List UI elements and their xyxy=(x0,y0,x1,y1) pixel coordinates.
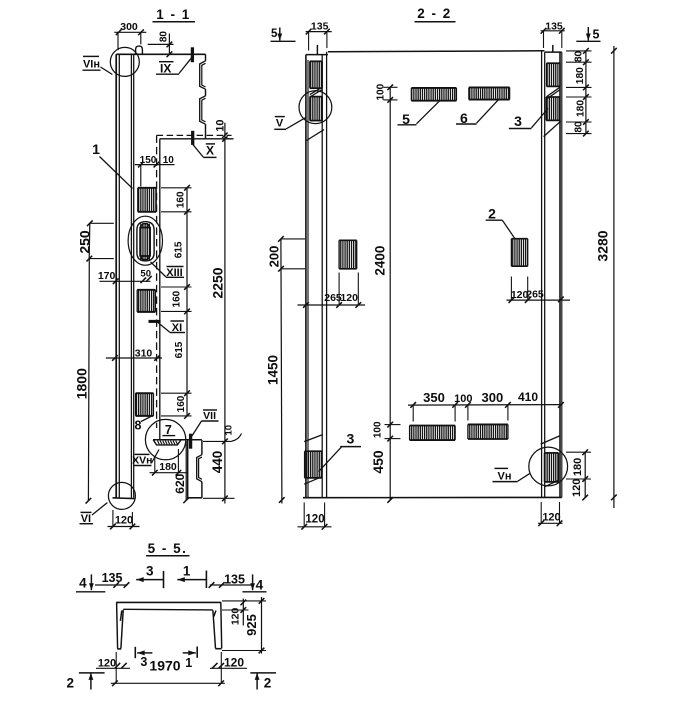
svg-text:300: 300 xyxy=(120,21,138,33)
svg-text:120: 120 xyxy=(340,292,358,304)
svg-text:V: V xyxy=(276,118,284,130)
svg-text:3280: 3280 xyxy=(595,230,611,261)
svg-text:4: 4 xyxy=(256,577,264,592)
svg-text:615: 615 xyxy=(174,241,185,258)
svg-text:120: 120 xyxy=(224,656,244,670)
svg-text:180: 180 xyxy=(576,100,587,117)
svg-text:350: 350 xyxy=(423,390,445,405)
svg-text:120: 120 xyxy=(542,512,560,524)
svg-text:100: 100 xyxy=(376,83,387,100)
svg-text:170: 170 xyxy=(98,270,116,282)
svg-text:2: 2 xyxy=(67,676,75,691)
svg-text:120: 120 xyxy=(98,657,116,669)
svg-text:3: 3 xyxy=(347,430,355,446)
svg-text:5: 5 xyxy=(593,28,600,42)
svg-text:1: 1 xyxy=(185,656,192,670)
svg-text:3: 3 xyxy=(140,655,147,669)
svg-text:5: 5 xyxy=(271,28,278,40)
svg-text:80: 80 xyxy=(574,51,585,63)
svg-text:80: 80 xyxy=(574,121,585,133)
svg-text:620: 620 xyxy=(173,473,187,493)
svg-text:180: 180 xyxy=(159,461,177,473)
svg-text:135: 135 xyxy=(311,20,329,32)
svg-text:160: 160 xyxy=(172,290,183,307)
svg-text:1 - 1: 1 - 1 xyxy=(156,7,191,22)
svg-text:200: 200 xyxy=(267,246,282,268)
svg-text:IX: IX xyxy=(160,62,171,76)
svg-text:2400: 2400 xyxy=(373,246,388,276)
svg-text:615: 615 xyxy=(174,341,185,358)
svg-text:1800: 1800 xyxy=(74,368,90,399)
svg-text:80: 80 xyxy=(159,31,170,43)
svg-text:180: 180 xyxy=(572,458,584,476)
svg-text:VIн: VIн xyxy=(83,58,100,70)
svg-text:180: 180 xyxy=(575,67,586,84)
svg-text:8: 8 xyxy=(135,418,142,432)
svg-text:2250: 2250 xyxy=(210,267,226,298)
svg-text:1970: 1970 xyxy=(149,657,180,673)
svg-text:1: 1 xyxy=(92,141,100,157)
svg-text:VII: VII xyxy=(203,410,216,422)
svg-text:2: 2 xyxy=(264,676,272,691)
svg-text:1450: 1450 xyxy=(266,355,281,385)
svg-text:100: 100 xyxy=(373,421,384,438)
svg-text:4: 4 xyxy=(79,576,87,591)
svg-text:2 - 2: 2 - 2 xyxy=(417,6,452,21)
svg-text:10: 10 xyxy=(224,425,235,436)
svg-text:Vн: Vн xyxy=(498,471,512,483)
svg-text:410: 410 xyxy=(518,390,538,404)
svg-text:925: 925 xyxy=(244,614,259,636)
svg-text:120: 120 xyxy=(115,514,133,526)
svg-text:440: 440 xyxy=(210,451,225,474)
svg-text:300: 300 xyxy=(482,390,504,405)
svg-text:X: X xyxy=(206,143,214,157)
svg-text:450: 450 xyxy=(370,450,386,474)
svg-text:5 - 5.: 5 - 5. xyxy=(148,541,188,556)
svg-text:2: 2 xyxy=(488,206,496,222)
svg-text:120: 120 xyxy=(571,479,583,497)
svg-text:3: 3 xyxy=(146,564,154,579)
svg-text:120: 120 xyxy=(305,514,324,526)
svg-text:1: 1 xyxy=(183,564,191,579)
svg-text:160: 160 xyxy=(176,395,187,412)
svg-text:160: 160 xyxy=(176,191,187,208)
svg-text:3: 3 xyxy=(514,113,522,129)
